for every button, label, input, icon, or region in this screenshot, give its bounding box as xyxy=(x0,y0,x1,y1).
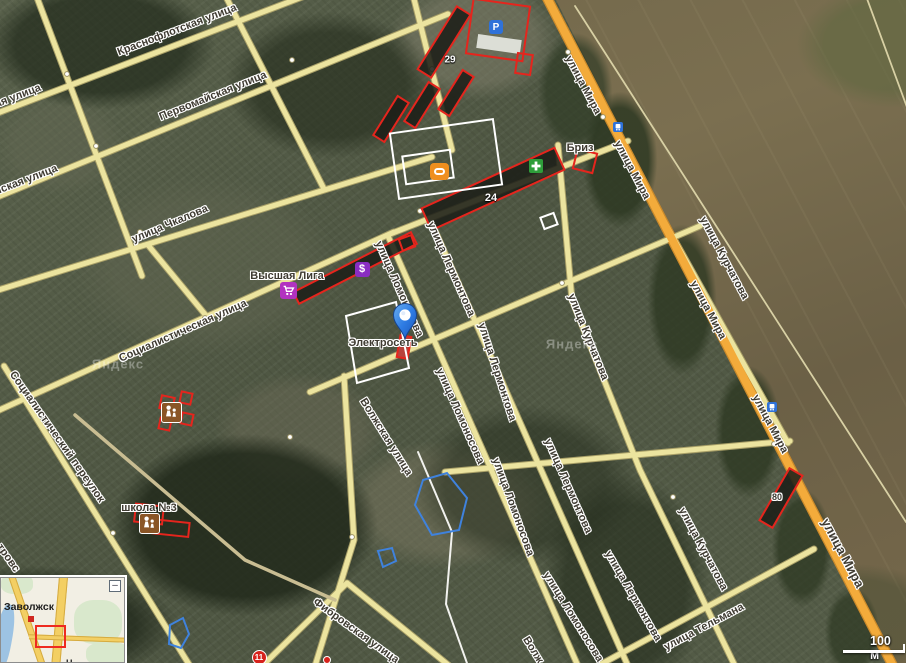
yandex-watermark: Яндекс xyxy=(92,357,144,372)
building-number-label: 80 xyxy=(772,492,782,502)
building-number-label: 29 xyxy=(444,55,455,66)
minimap-inset[interactable]: Заволжск Н – xyxy=(0,577,125,663)
vector-overlay xyxy=(0,0,906,663)
stadium-icon[interactable] xyxy=(430,163,449,180)
building-outline xyxy=(404,82,439,128)
building-outline xyxy=(438,70,473,116)
red-poi-dot[interactable] xyxy=(323,656,331,663)
satellite-map-viewport[interactable]: Краснофлотская улицаая улицаПервомайская… xyxy=(0,0,906,663)
parking-icon[interactable]: P xyxy=(489,20,503,34)
building-number-label: 24 xyxy=(485,192,497,204)
building-badge-11[interactable]: 11 xyxy=(252,650,267,663)
minimap-partial-label: Н xyxy=(66,658,73,663)
location-pin[interactable] xyxy=(391,302,419,340)
scale-bar-line xyxy=(843,650,905,653)
bus-stop-icon[interactable] xyxy=(613,122,623,132)
poi-label: Бриз xyxy=(567,142,594,154)
scale-bar-tick xyxy=(903,644,905,653)
currency-exchange-icon[interactable]: $ xyxy=(355,262,370,277)
shopping-cart-icon[interactable] xyxy=(280,282,297,299)
kindergarten-icon[interactable] xyxy=(161,402,182,423)
stadium-ring xyxy=(434,168,445,175)
yandex-watermark: Яндекс xyxy=(546,337,598,352)
building-outline xyxy=(180,412,193,425)
pharmacy-cross-icon[interactable] xyxy=(529,159,543,173)
poi-label: Высшая Лига xyxy=(250,270,323,282)
selected-area-outline xyxy=(378,548,396,567)
minimap-town-marker xyxy=(28,616,34,622)
bus-stop-icon[interactable] xyxy=(767,402,777,412)
minimap-collapse-button[interactable]: – xyxy=(109,580,121,592)
minimap-main-road xyxy=(50,577,68,663)
school-icon[interactable] xyxy=(139,513,160,534)
scale-label: 100 м xyxy=(870,634,891,662)
minimap-green-area xyxy=(86,642,125,663)
minimap-town-label: Заволжск xyxy=(4,601,54,613)
minimap-viewport-rect[interactable] xyxy=(35,625,66,648)
